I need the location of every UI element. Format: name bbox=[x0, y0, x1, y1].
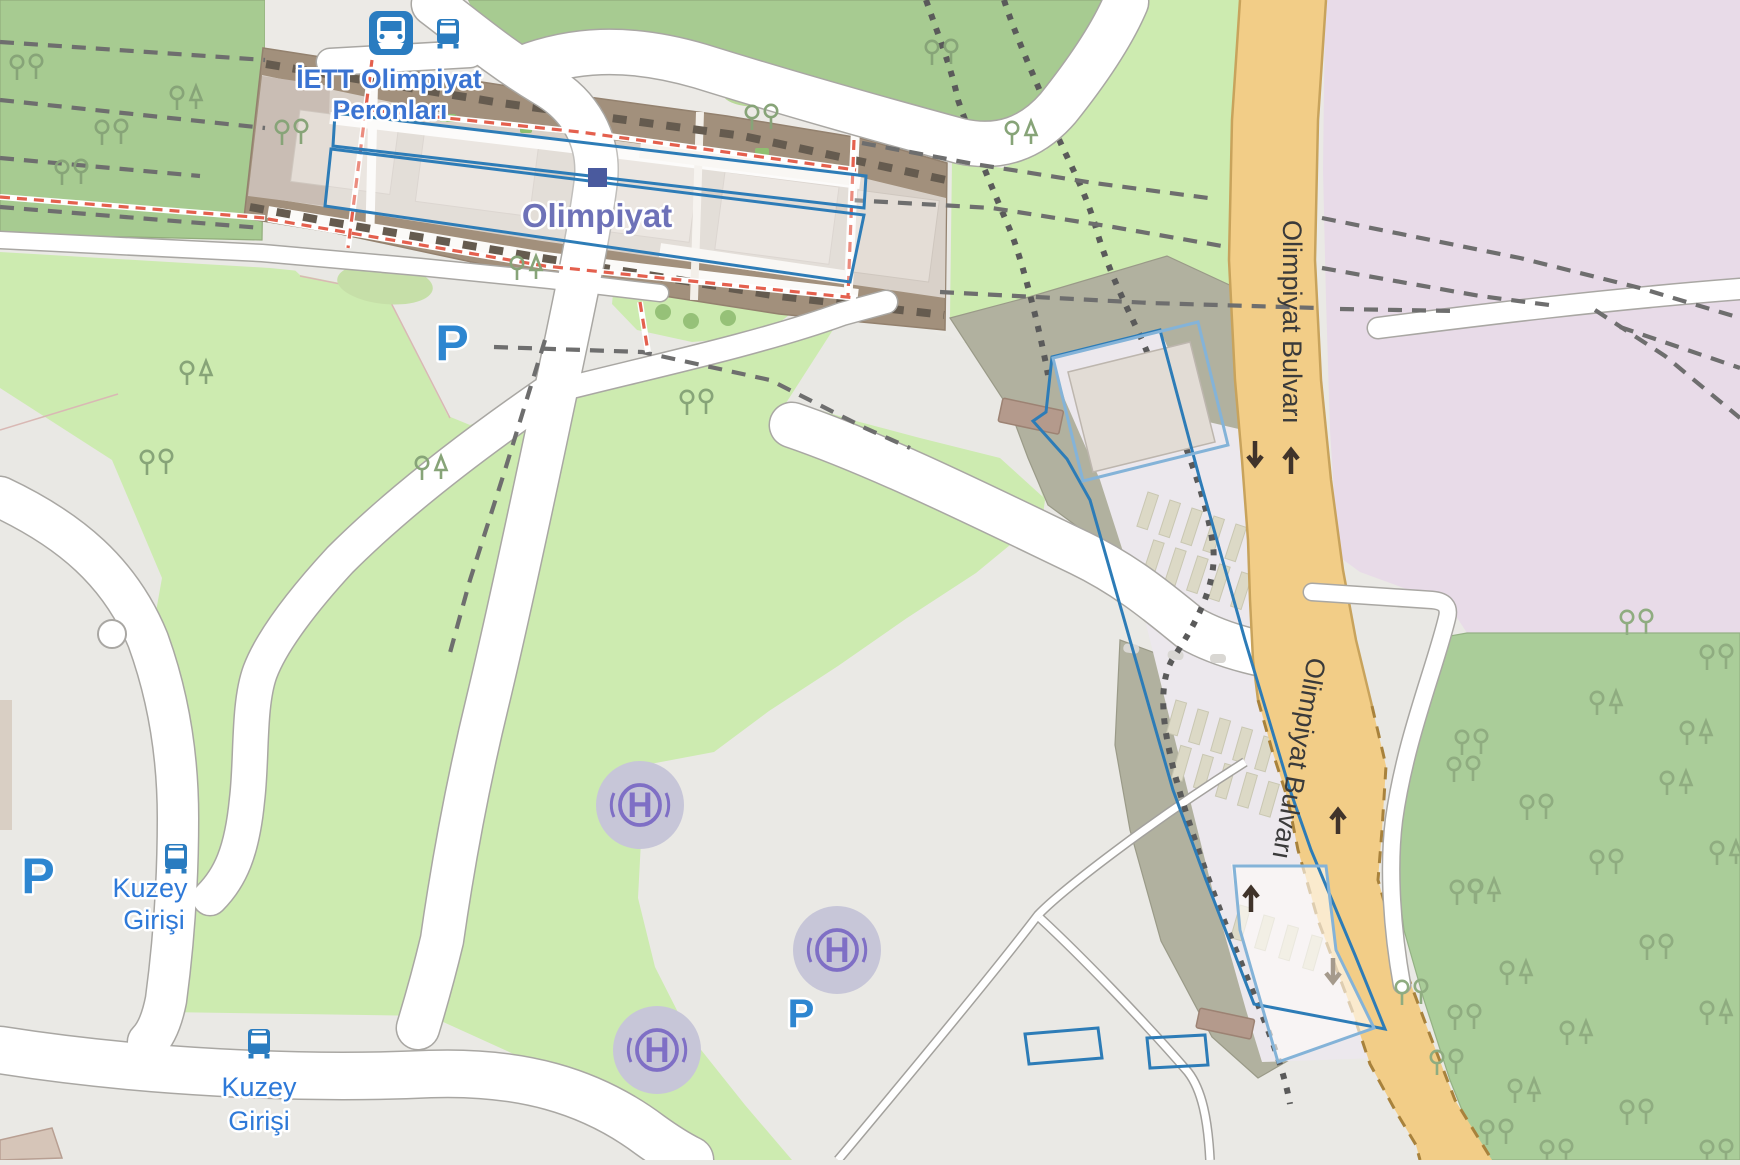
svg-text:Peronları: Peronları bbox=[333, 95, 448, 125]
svg-text:İETT Olimpiyat: İETT Olimpiyat bbox=[296, 64, 482, 94]
svg-text:Olimpiyat: Olimpiyat bbox=[522, 197, 672, 234]
svg-text:P: P bbox=[788, 992, 815, 1036]
svg-text:Kuzey: Kuzey bbox=[112, 873, 188, 903]
svg-text:Kuzey: Kuzey bbox=[221, 1072, 297, 1102]
svg-text:Girişi: Girişi bbox=[123, 905, 185, 935]
svg-text:P: P bbox=[435, 315, 468, 371]
svg-text:Girişi: Girişi bbox=[228, 1106, 290, 1136]
svg-text:P: P bbox=[21, 848, 54, 904]
svg-text:Olimpiyat Bulvarı: Olimpiyat Bulvarı bbox=[1277, 220, 1307, 424]
